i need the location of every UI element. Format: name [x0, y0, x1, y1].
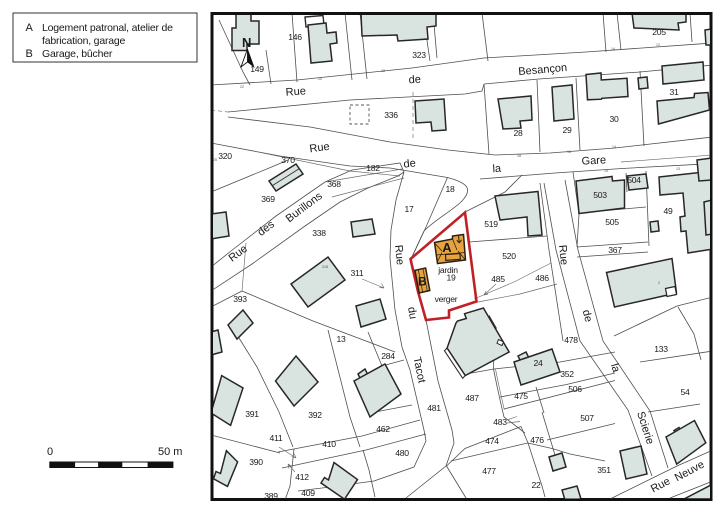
- svg-text:392: 392: [308, 410, 322, 420]
- svg-text:477: 477: [482, 466, 496, 476]
- svg-text:50 m: 50 m: [158, 446, 182, 458]
- svg-text:320: 320: [218, 151, 232, 161]
- svg-text:146: 146: [288, 32, 302, 42]
- svg-text:18: 18: [445, 184, 455, 194]
- svg-text:391: 391: [245, 409, 259, 419]
- svg-text:476: 476: [530, 435, 544, 445]
- svg-text:483: 483: [493, 417, 507, 427]
- svg-text:0: 0: [47, 446, 53, 458]
- svg-text:28: 28: [513, 128, 523, 138]
- svg-text:462: 462: [376, 424, 390, 434]
- svg-text:13: 13: [676, 167, 680, 171]
- svg-text:13: 13: [336, 334, 346, 344]
- svg-text:30: 30: [609, 114, 619, 124]
- svg-text:54: 54: [680, 387, 690, 397]
- svg-text:367: 367: [608, 245, 622, 255]
- svg-text:N: N: [242, 35, 251, 50]
- svg-text:475: 475: [514, 391, 528, 401]
- svg-text:369: 369: [261, 194, 275, 204]
- svg-text:12: 12: [656, 43, 660, 47]
- svg-text:481: 481: [427, 403, 441, 413]
- svg-text:218: 218: [322, 265, 328, 269]
- svg-text:B: B: [418, 275, 427, 289]
- svg-text:Rue: Rue: [392, 244, 406, 265]
- svg-text:311: 311: [351, 268, 364, 278]
- svg-text:485: 485: [491, 274, 505, 284]
- svg-text:31: 31: [669, 87, 679, 97]
- svg-text:15: 15: [604, 169, 608, 173]
- svg-text:49: 49: [663, 206, 673, 216]
- svg-text:17: 17: [404, 204, 414, 214]
- svg-text:Garage, bûcher: Garage, bûcher: [42, 48, 113, 60]
- svg-text:486: 486: [535, 273, 549, 283]
- svg-text:480: 480: [395, 448, 409, 458]
- svg-text:478: 478: [564, 335, 578, 345]
- svg-text:Rue: Rue: [285, 85, 306, 98]
- svg-text:2: 2: [658, 281, 660, 285]
- svg-text:351: 351: [597, 465, 611, 475]
- svg-text:24: 24: [533, 358, 543, 368]
- svg-text:284: 284: [381, 351, 395, 361]
- svg-text:A: A: [442, 240, 452, 255]
- svg-text:de: de: [403, 157, 416, 170]
- svg-text:410: 410: [322, 439, 336, 449]
- svg-text:393: 393: [233, 294, 247, 304]
- svg-text:503: 503: [593, 190, 607, 200]
- svg-text:504: 504: [627, 175, 641, 185]
- svg-text:verger: verger: [435, 294, 458, 304]
- svg-text:19: 19: [446, 273, 456, 283]
- svg-text:323: 323: [412, 50, 426, 60]
- svg-text:14: 14: [612, 145, 616, 149]
- svg-text:25: 25: [213, 158, 217, 162]
- svg-text:fabrication, garage: fabrication, garage: [42, 35, 126, 47]
- svg-text:A: A: [26, 22, 34, 34]
- svg-text:du: du: [405, 306, 419, 320]
- svg-text:412: 412: [295, 472, 309, 482]
- svg-text:506: 506: [568, 384, 582, 394]
- svg-text:18: 18: [517, 154, 521, 158]
- svg-text:338: 338: [312, 228, 326, 238]
- svg-text:370: 370: [281, 155, 295, 165]
- svg-text:Gare: Gare: [581, 154, 606, 167]
- svg-text:520: 520: [502, 251, 516, 261]
- svg-text:la: la: [492, 163, 502, 175]
- svg-text:409: 409: [301, 488, 315, 498]
- svg-text:474: 474: [485, 436, 499, 446]
- svg-text:29: 29: [562, 125, 572, 135]
- svg-text:352: 352: [560, 369, 574, 379]
- svg-text:Logement patronal, atelier de: Logement patronal, atelier de: [42, 22, 173, 34]
- svg-text:507: 507: [580, 413, 594, 423]
- svg-text:Rue: Rue: [556, 244, 570, 265]
- svg-text:487: 487: [465, 393, 479, 403]
- svg-text:22: 22: [531, 480, 541, 490]
- svg-text:336: 336: [384, 110, 398, 120]
- svg-text:de: de: [408, 74, 421, 87]
- svg-text:505: 505: [605, 217, 619, 227]
- svg-text:519: 519: [484, 219, 498, 229]
- svg-text:22: 22: [240, 85, 244, 89]
- svg-text:182: 182: [366, 163, 380, 173]
- svg-text:368: 368: [327, 179, 341, 189]
- svg-text:20: 20: [318, 77, 322, 81]
- svg-text:205: 205: [652, 27, 666, 37]
- svg-text:B: B: [26, 48, 33, 60]
- svg-text:133: 133: [654, 344, 668, 354]
- svg-text:390: 390: [249, 457, 263, 467]
- svg-text:18: 18: [381, 69, 385, 73]
- svg-text:16: 16: [567, 150, 571, 154]
- svg-text:14: 14: [611, 47, 615, 51]
- svg-text:411: 411: [270, 433, 283, 443]
